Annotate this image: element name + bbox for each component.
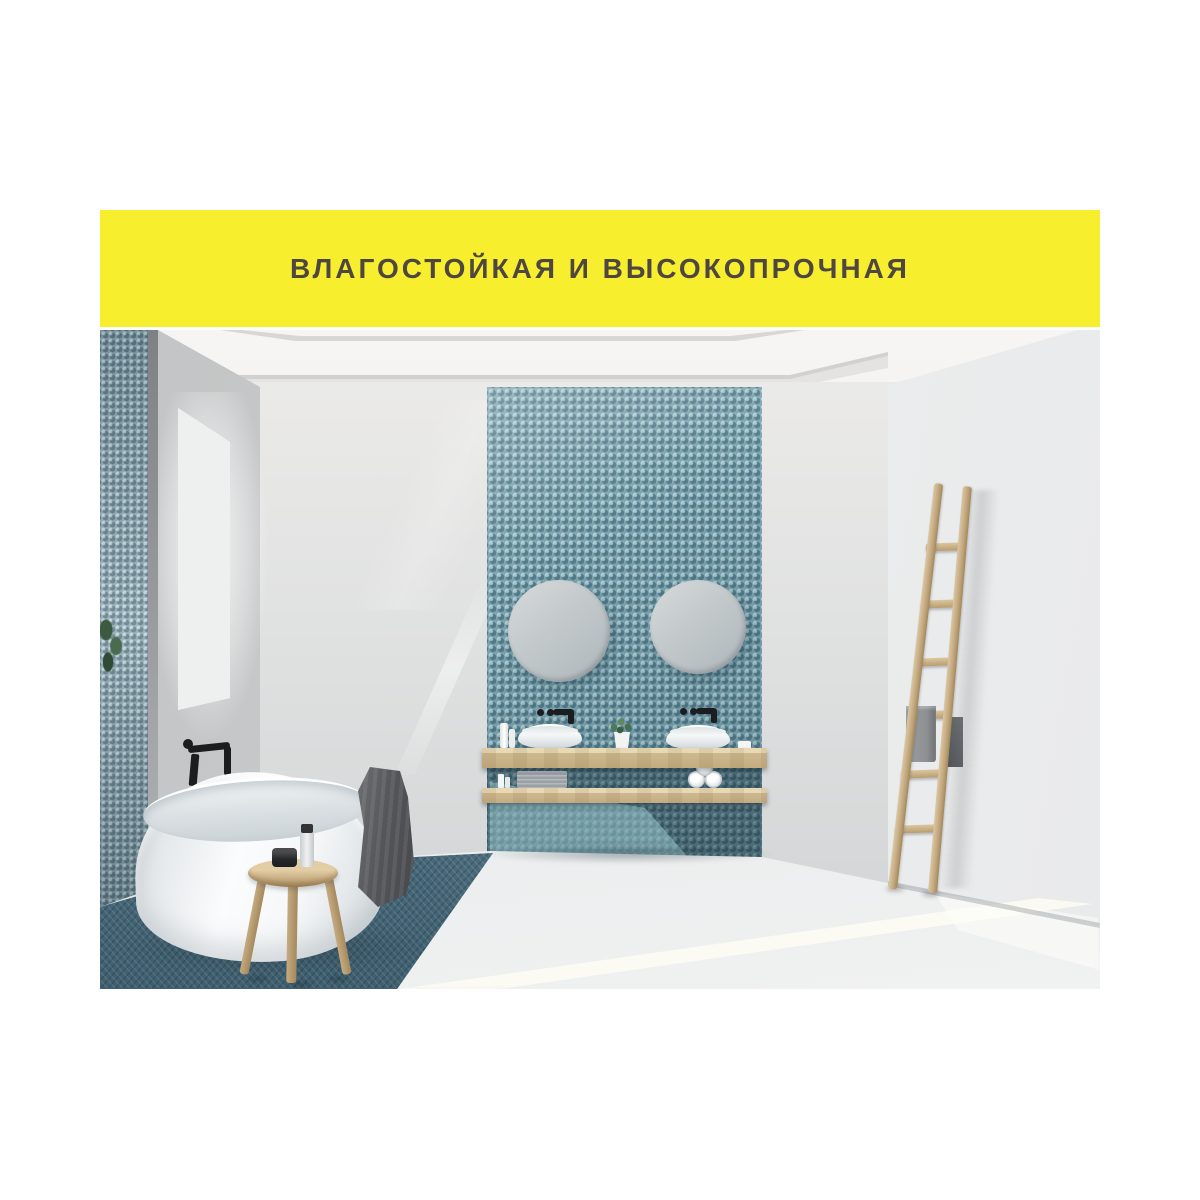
faucet-spout-tip <box>568 711 574 724</box>
toiletry-bottle <box>498 774 504 788</box>
floating-shelf-lower <box>482 788 767 803</box>
faucet-handle-icon <box>537 709 544 716</box>
vessel-sink-right <box>666 725 730 750</box>
plant-leaves <box>100 612 128 680</box>
promo-banner: ВЛАГОСТОЙКАЯ И ВЫСОКОПРОЧНАЯ <box>100 210 1100 327</box>
toiletry-bottle <box>500 723 508 748</box>
tub-faucet-spout <box>224 746 231 776</box>
vessel-sink-left <box>518 724 582 749</box>
vanity-floor-shadow <box>478 844 778 864</box>
cosmetic-bottle <box>300 831 314 867</box>
toiletry-bottle <box>509 729 515 748</box>
banner-text: ВЛАГОСТОЙКАЯ И ВЫСОКОПРОЧНАЯ <box>290 253 910 285</box>
bathroom-photo <box>100 330 1100 989</box>
cosmetic-bottle-cap <box>301 824 313 833</box>
potted-plant <box>606 715 636 735</box>
round-mirror-right <box>650 580 746 674</box>
wall-faucet-right <box>680 705 722 727</box>
toiletry-bottle <box>505 777 510 788</box>
faucet-spout-tip <box>711 710 717 723</box>
promo-image: ВЛАГОСТОЙКАЯ И ВЫСОКОПРОЧНАЯ <box>0 0 1200 1200</box>
tub-faucet-knob <box>183 739 193 749</box>
stool-leg-shadow <box>328 976 348 982</box>
stool-leg <box>286 882 298 983</box>
cosmetic-jar-black <box>272 848 297 867</box>
folded-towels <box>517 771 567 788</box>
stool-leg-shadow <box>248 976 268 982</box>
faucet-handle-icon <box>680 708 687 715</box>
floating-shelf-upper <box>482 748 767 768</box>
round-mirror-left <box>508 580 610 682</box>
